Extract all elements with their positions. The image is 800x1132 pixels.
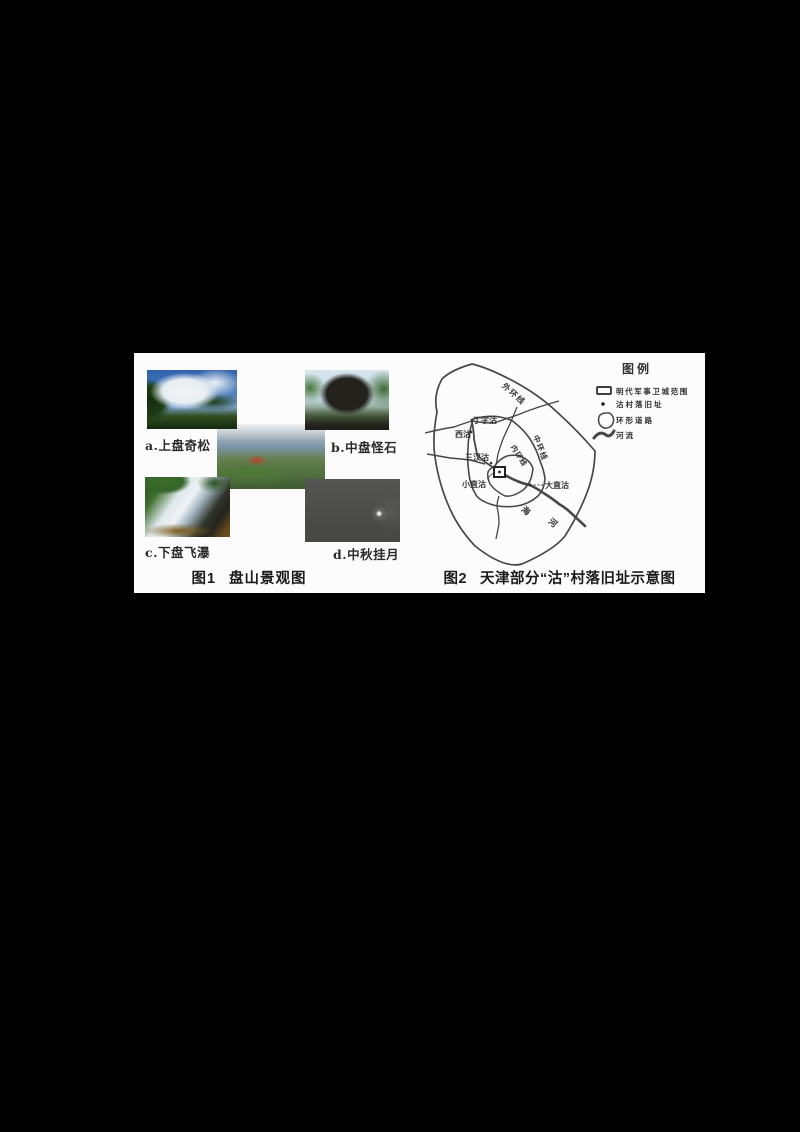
legend-item-ringroad-label: 环形道路 xyxy=(616,415,654,425)
figure2-caption-title: 天津部分“沽”村落旧址示意图 xyxy=(480,567,676,588)
south-road-line xyxy=(496,496,499,539)
figure2-caption: 图2 天津部分“沽”村落旧址示意图 xyxy=(417,567,702,588)
dazhigu-dot xyxy=(529,484,532,487)
xiaozhigu-label: 小直沽 xyxy=(461,479,486,489)
photo-c-caption: c.下盘飞瀑 xyxy=(145,542,210,561)
sanchagu-label: 三汊沽 xyxy=(465,452,489,462)
figure2-caption-label: 图2 xyxy=(443,567,467,588)
photo-b-caption: b.中盘怪石 xyxy=(331,437,397,456)
fort-inner-dot xyxy=(498,471,501,474)
figure1-caption: 图1 盘山景观图 xyxy=(142,567,356,588)
black-background: a.上盘奇松 b.中盘怪石 c.下盘飞瀑 d.中秋挂月 图1 盘山景观图 xyxy=(0,0,800,1132)
photo-waterfall xyxy=(145,477,230,537)
figure1-caption-label: 图1 xyxy=(191,567,216,588)
legend-item-fort-label: 明代军事卫城范围 xyxy=(616,386,689,396)
thick-river-line-icon xyxy=(594,431,614,438)
dot-icon xyxy=(601,402,605,406)
gu-village-map: 外环线 中环线 内环线 丁字沽 西沽 三汊沽 小直沽 大直沽 海 河 图例 明代… xyxy=(419,357,700,567)
legend: 图例 明代军事卫城范围 沽村落旧址 环形道路 河流 xyxy=(594,361,689,440)
photo-autumn-moon xyxy=(305,479,400,542)
sanchagu-dot xyxy=(490,462,493,465)
dingzigu-label: 丁字沽 xyxy=(473,415,497,425)
figure1-caption-title: 盘山景观图 xyxy=(229,567,307,588)
legend-title: 图例 xyxy=(622,361,652,376)
xigu-label: 西沽 xyxy=(455,429,471,439)
outer-ring-label: 外环线 xyxy=(500,381,528,408)
photo-upper-pines xyxy=(147,370,237,429)
legend-item-river-label: 河流 xyxy=(616,430,635,440)
dazhigu-label: 大直沽 xyxy=(545,480,569,490)
rectangle-outline-icon xyxy=(597,387,611,394)
middle-ring-label: 中环线 xyxy=(531,433,550,462)
legend-item-village-label: 沽村落旧址 xyxy=(616,399,664,409)
river-label-char2: 河 xyxy=(546,516,560,530)
photo-d-caption: d.中秋挂月 xyxy=(333,544,399,563)
photo-a-caption: a.上盘奇松 xyxy=(145,435,210,454)
photo-strange-rock xyxy=(305,370,389,430)
river-label-char1: 海 xyxy=(519,504,533,518)
figure-panel: a.上盘奇松 b.中盘怪石 c.下盘飞瀑 d.中秋挂月 图1 盘山景观图 xyxy=(134,353,705,593)
ring-loop-icon xyxy=(599,413,614,428)
